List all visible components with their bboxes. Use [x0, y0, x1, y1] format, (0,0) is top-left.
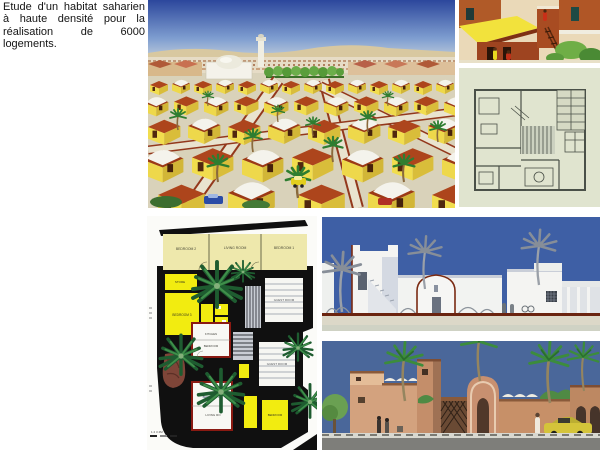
color-elevation-drawing: [322, 341, 600, 450]
ground-line: [322, 313, 600, 316]
master-plan-drawing: BEDROOM 2 LIVING ROOM BEDROOM 1 STORE BE…: [147, 216, 317, 450]
tree-row: [264, 66, 344, 77]
courtyard-detail-figure: [459, 0, 600, 63]
room-label-bedroom-mid: BEDROOM: [204, 344, 219, 348]
guest-room-upper: GUEST ROOM: [265, 278, 303, 322]
room-label-bedroom1: BEDROOM 1: [274, 246, 294, 250]
room-label-bedroom-right: BEDROOM: [268, 413, 283, 417]
red-room-upper: KITCHEN BEDROOM: [192, 323, 230, 357]
room-label-bedroom2: BEDROOM 2: [176, 247, 196, 251]
room-label-guest-lower: GUEST ROOM: [267, 362, 288, 366]
white-elevation-figure: [322, 217, 600, 331]
aerial-panorama-figure: [148, 0, 455, 208]
room-label-kitchen: KITCHEN: [205, 332, 217, 336]
courtyard-detail-illustration: [459, 0, 600, 63]
room-label-store: STORE: [175, 280, 185, 284]
upper-rooms: BEDROOM 2 LIVING ROOM BEDROOM 1: [163, 234, 307, 270]
street: [322, 433, 600, 450]
room-label-living-room: LIVING ROOM: [224, 246, 247, 250]
aerial-panorama-illustration: [148, 0, 455, 208]
technical-plan-figure: [459, 68, 600, 207]
technical-plan-drawing: [459, 68, 600, 207]
caption-text: Etude d'un habitat saharien à haute dens…: [3, 1, 145, 51]
room-label-living-low: LIVING RO: [205, 413, 221, 417]
color-elevation-figure: [322, 341, 600, 450]
white-elevation-drawing: [322, 217, 600, 331]
scale-text: 1 2 3 4M: [151, 430, 163, 434]
master-plan-figure: BEDROOM 2 LIVING ROOM BEDROOM 1 STORE BE…: [147, 216, 317, 450]
room-label-bedroom3: BEDROOM 3: [172, 313, 191, 317]
room-label-guest-upper: GUEST ROOM: [274, 298, 295, 302]
